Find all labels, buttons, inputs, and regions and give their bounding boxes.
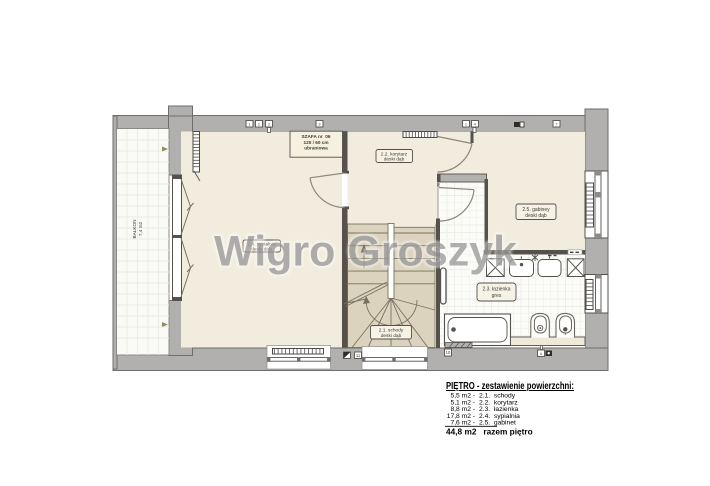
svg-text:deski dąb: deski dąb: [384, 157, 405, 163]
svg-text:1: 1: [258, 121, 260, 126]
svg-text:2.3. łazienka: 2.3. łazienka: [482, 287, 510, 293]
svg-text:10: 10: [446, 350, 451, 355]
svg-text:U: U: [540, 352, 543, 356]
svg-text:1: 1: [465, 121, 467, 126]
svg-text:PIĘTRO - zestawienie powierzch: PIĘTRO - zestawienie powierzchni:: [446, 381, 574, 392]
svg-text:SZAFA nr 06: SZAFA nr 06: [302, 134, 331, 139]
svg-text:BALKON: BALKON: [132, 219, 137, 238]
svg-text:1: 1: [248, 121, 250, 126]
svg-text:7: 7: [555, 121, 557, 126]
svg-text:ubraniowa: ubraniowa: [304, 146, 328, 151]
svg-text:44,8 m2 razem piętro: 44,8 m2 razem piętro: [446, 427, 533, 437]
svg-text:deski dąb: deski dąb: [381, 333, 402, 339]
svg-text:Wigro Groszyk: Wigro Groszyk: [214, 228, 517, 276]
svg-text:deski dąb: deski dąb: [525, 213, 547, 219]
svg-text:120 / 60 cm: 120 / 60 cm: [303, 140, 328, 145]
svg-text:11: 11: [356, 353, 361, 358]
svg-text:3: 3: [318, 121, 320, 126]
svg-text:2: 2: [268, 121, 270, 126]
svg-text:gres: gres: [492, 293, 502, 299]
svg-text:7,4 m2: 7,4 m2: [138, 221, 143, 236]
svg-text:2.1. schody: 2.1. schody: [379, 328, 404, 334]
